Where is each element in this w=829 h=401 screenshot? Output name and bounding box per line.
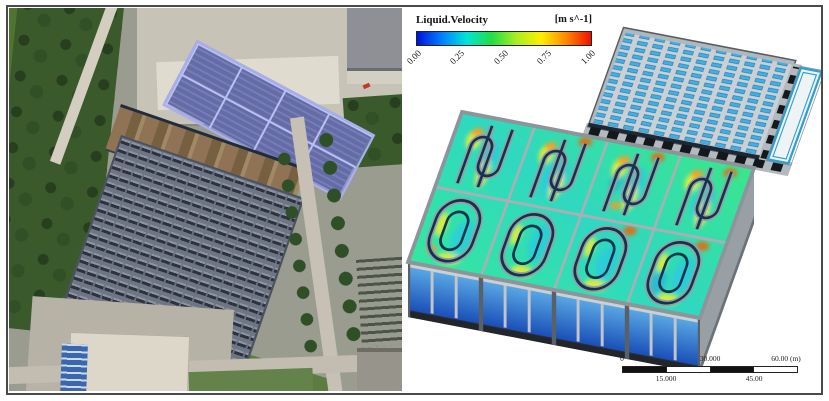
- building-bottom-right: [357, 348, 402, 391]
- ruler-label-30: 30.000: [680, 354, 740, 363]
- legend-title: Liquid.Velocity: [416, 14, 488, 26]
- ruler-label-60: 60.00 (m): [756, 354, 816, 363]
- colorbar: [416, 31, 592, 46]
- ruler-label-45: 45.00: [724, 374, 784, 383]
- ruler-segment: [711, 367, 755, 372]
- building-top-right: [347, 8, 402, 71]
- ruler-label-15: 15.000: [636, 374, 696, 383]
- blue-building-section: [60, 344, 88, 391]
- ruler-segment: [754, 367, 797, 372]
- ruler-segment: [667, 367, 711, 372]
- ruler-segment: [623, 367, 667, 372]
- figure: Liquid.Velocity [m s^-1] 0.00 0.25 0.50 …: [0, 0, 829, 401]
- cfd-render: [402, 7, 821, 392]
- legend-units: [m s^-1]: [500, 14, 592, 25]
- ruler-label-0: 0: [592, 354, 652, 363]
- panel-rows-bottom-right: [356, 256, 402, 347]
- grass-bottom: [189, 368, 314, 391]
- satellite-photo-panel: [9, 8, 402, 391]
- scale-ruler: [622, 366, 798, 373]
